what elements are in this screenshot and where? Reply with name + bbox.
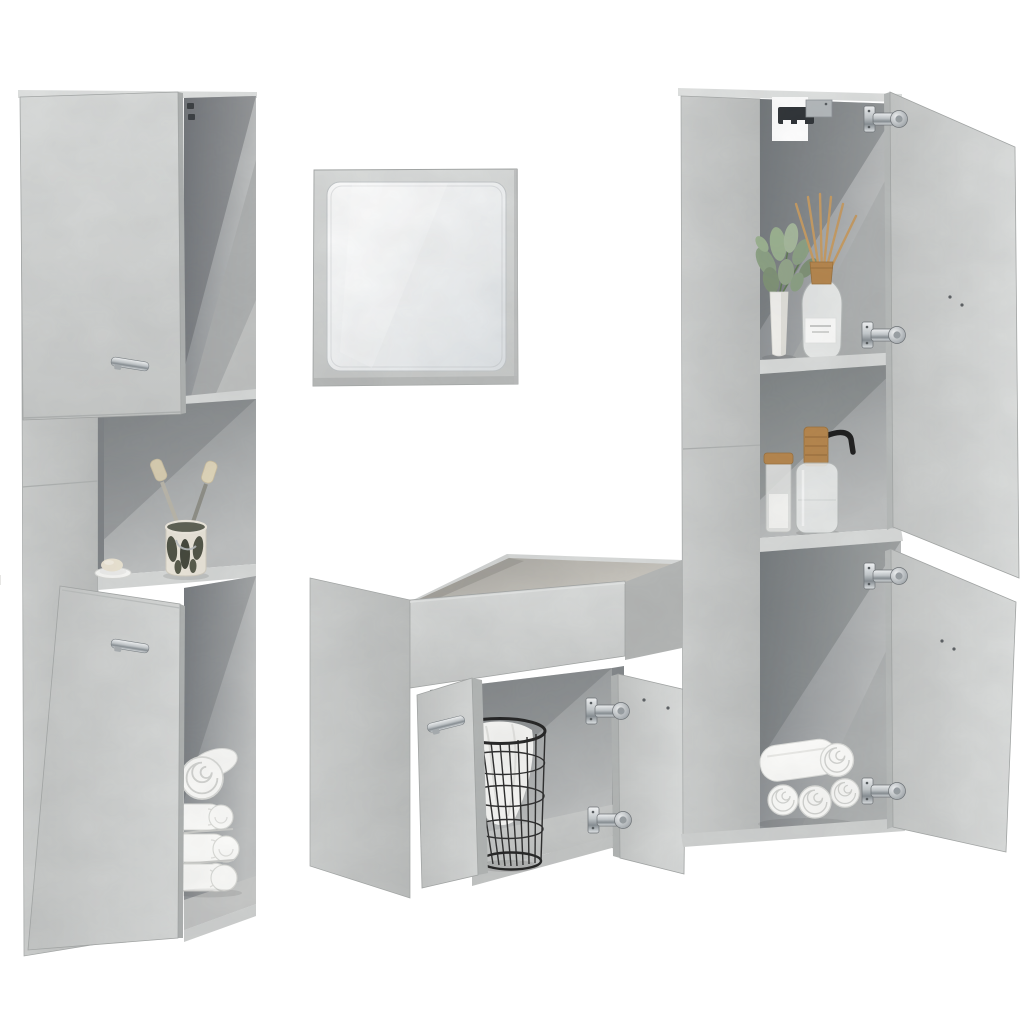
middle-open-shelf [760,364,901,538]
soap-bar [101,559,123,572]
basin-left-door [417,678,488,888]
storage-jar [764,453,793,532]
wall-mirror [313,169,518,386]
hinge-plate-mark [187,103,194,109]
folded-towels [174,804,242,898]
jar-lid [764,453,793,464]
upper-door [20,92,186,420]
basin-side-panel [310,578,410,898]
tall-cabinet-left [18,90,257,956]
diffuser-cap [810,262,833,284]
upper-compartment [751,97,901,364]
hinge-plate-mark [188,114,195,120]
bathroom-set-illustration: 4-piece bathroom furniture set in concre… [0,0,1024,1024]
lower-open-compartment [174,576,256,942]
diffuser-label [805,318,836,343]
middle-open-shelf [95,399,256,590]
tall-cabinet-right [678,88,1019,852]
furniture-scene [0,88,1019,956]
upper-open-compartment [184,96,256,402]
cabinet-side-panel [681,96,762,842]
product-photo-canvas: 4-piece bathroom furniture set in concre… [0,0,1024,1024]
